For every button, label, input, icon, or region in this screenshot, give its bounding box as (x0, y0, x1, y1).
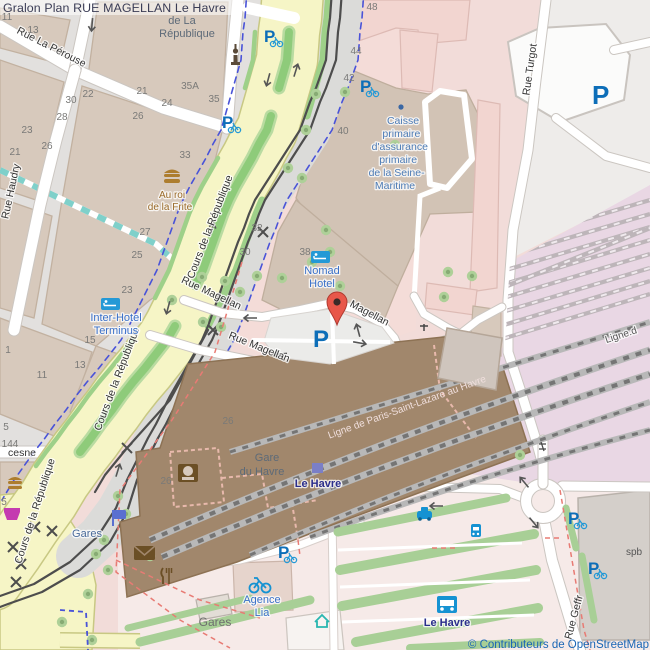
svg-text:26: 26 (222, 416, 234, 427)
svg-text:35A: 35A (181, 81, 199, 92)
svg-text:Maritime: Maritime (375, 180, 415, 192)
svg-text:38: 38 (299, 247, 311, 258)
svg-text:P: P (313, 326, 329, 353)
svg-text:21: 21 (136, 86, 148, 97)
svg-text:P: P (592, 80, 609, 110)
svg-text:© Contributeurs de OpenStreetM: © Contributeurs de OpenStreetMap (468, 639, 649, 650)
svg-text:Le Havre: Le Havre (424, 617, 470, 629)
svg-text:Caisse: Caisse (387, 115, 419, 127)
svg-text:Gare: Gare (255, 452, 279, 464)
svg-text:de la Seine-: de la Seine- (369, 167, 426, 179)
svg-text:Gares: Gares (72, 528, 102, 540)
svg-text:30: 30 (239, 247, 251, 258)
svg-text:11: 11 (2, 12, 13, 23)
svg-text:15: 15 (84, 335, 96, 346)
svg-text:33: 33 (179, 150, 191, 161)
svg-text:1: 1 (5, 345, 11, 356)
svg-text:22: 22 (82, 89, 94, 100)
svg-text:40: 40 (337, 126, 349, 137)
svg-text:44: 44 (350, 46, 362, 57)
svg-text:26: 26 (132, 111, 144, 122)
svg-text:30: 30 (65, 95, 77, 106)
svg-text:Gares: Gares (199, 615, 232, 629)
svg-text:Terminus: Terminus (94, 325, 139, 337)
svg-text:Lia: Lia (255, 607, 271, 619)
svg-text:Hotel: Hotel (309, 278, 335, 290)
svg-text:Inter-Hotel: Inter-Hotel (90, 312, 141, 324)
svg-text:35: 35 (208, 94, 220, 105)
svg-text:28: 28 (56, 112, 68, 123)
svg-text:de La: de La (168, 15, 196, 27)
svg-text:Agence: Agence (243, 594, 280, 606)
svg-text:26: 26 (160, 476, 172, 487)
svg-text:République: République (159, 28, 215, 40)
svg-text:48: 48 (366, 2, 378, 13)
svg-text:d'assurance: d'assurance (372, 141, 428, 153)
svg-text:21: 21 (9, 147, 21, 158)
svg-text:du Havre: du Havre (240, 466, 285, 478)
svg-text:27: 27 (139, 227, 151, 238)
svg-text:Gralon Plan RUE MAGELLAN Le Ha: Gralon Plan RUE MAGELLAN Le Havre (3, 1, 226, 15)
svg-text:144: 144 (2, 439, 19, 450)
svg-text:23: 23 (21, 125, 33, 136)
svg-text:42: 42 (343, 73, 355, 84)
svg-text:11: 11 (37, 370, 48, 381)
svg-text:32: 32 (251, 223, 263, 234)
svg-text:23: 23 (121, 285, 133, 296)
svg-text:Nomad: Nomad (304, 265, 339, 277)
svg-text:24: 24 (161, 98, 173, 109)
svg-text:de la Frite: de la Frite (148, 202, 193, 213)
svg-text:13: 13 (27, 25, 39, 36)
svg-text:13: 13 (74, 360, 86, 371)
svg-text:Au roi: Au roi (159, 190, 185, 201)
svg-text:5: 5 (3, 422, 9, 433)
svg-text:26: 26 (41, 141, 53, 152)
svg-text:spb: spb (626, 547, 643, 558)
svg-text:primaire: primaire (382, 128, 420, 140)
svg-text:primaire: primaire (379, 154, 417, 166)
svg-text:25: 25 (131, 250, 143, 261)
svg-text:5: 5 (1, 497, 7, 508)
svg-text:Le Havre: Le Havre (295, 478, 341, 490)
